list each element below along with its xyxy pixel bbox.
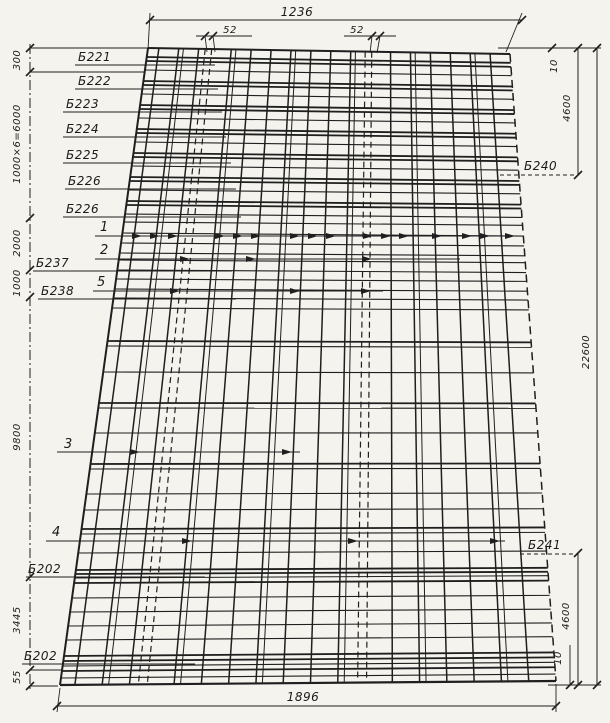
grid-line-v <box>174 49 231 684</box>
grid-line-h <box>64 652 554 656</box>
grid-line-h <box>145 70 512 76</box>
beam-label-b241: Б241 <box>528 538 561 552</box>
grid-line-h <box>135 142 517 147</box>
grid-line-h <box>124 222 523 225</box>
grid-line-h <box>112 308 529 310</box>
grid-line-h <box>116 279 527 281</box>
grid-line-h <box>126 205 521 209</box>
flow-arrow <box>180 256 190 262</box>
flow-arrow <box>462 233 472 239</box>
grid-line-h <box>133 157 518 161</box>
grid-line-h <box>133 153 517 157</box>
flow-arrow <box>130 449 140 455</box>
grid-line-v <box>338 51 351 682</box>
flow-arrow <box>308 233 318 239</box>
row-marker-5: 5 <box>97 275 106 290</box>
drawing-sheet: 1236 52 52 1896 300 1000×6=6000 2000 100… <box>0 0 610 723</box>
slab-edge-right-cut <box>510 54 556 681</box>
grid-joint-line <box>358 52 366 683</box>
grid-line-h <box>72 595 550 598</box>
dim-bottom-width: 1896 <box>287 690 320 704</box>
grid-line-v <box>475 53 508 681</box>
grid-line-h <box>127 201 521 205</box>
dim-ext <box>148 13 150 50</box>
grid-line-h <box>84 509 543 510</box>
grid-line-h <box>76 568 548 570</box>
flow-arrow <box>348 538 358 544</box>
beam-label-b223: Б223 <box>66 97 99 111</box>
grid-line-v <box>229 50 271 684</box>
dim-left-3445: 3445 <box>12 606 23 633</box>
grid-line-h <box>103 372 533 373</box>
dim-right-10-bottom: 10 <box>553 651 564 665</box>
beam-label-b221: Б221 <box>78 50 111 64</box>
grid-line-h <box>120 253 525 256</box>
grid-line-v <box>490 54 529 682</box>
dim-right-4600-top: 4600 <box>562 94 573 121</box>
flow-arrow <box>381 233 391 239</box>
slab-edge-bottom <box>60 681 556 685</box>
grid-line-h <box>63 657 554 661</box>
row-marker-1: 1 <box>100 220 109 235</box>
flow-arrow <box>282 449 292 455</box>
grid-line-v <box>201 50 251 684</box>
grid-line-v <box>283 51 311 684</box>
flow-arrow <box>363 233 373 239</box>
row-marker-3: 3 <box>64 437 73 452</box>
dim-right-10-top: 10 <box>549 59 560 73</box>
grid-joint-line <box>367 52 372 683</box>
grid-line-h <box>70 609 551 612</box>
grid-line-h <box>62 667 555 671</box>
grid-line-h <box>138 118 515 123</box>
grid-line-h <box>130 181 520 185</box>
grid-line-h <box>66 637 553 640</box>
dim-left-2000: 2000 <box>12 229 23 256</box>
grid-line-h <box>81 532 545 534</box>
reinforcement-plan-drawing: 1236 52 52 1896 300 1000×6=6000 2000 100… <box>0 0 610 723</box>
grid-line-h <box>130 177 519 181</box>
grid-line-v <box>391 52 393 682</box>
dim-left-300: 300 <box>12 50 23 71</box>
grid-line-h <box>121 243 524 246</box>
slab-edge-left <box>60 48 148 685</box>
flow-arrow <box>290 288 300 294</box>
beam-label-b226a: Б226 <box>68 174 101 188</box>
grid-line-h <box>107 346 532 347</box>
dimension-lines <box>22 13 601 712</box>
grid-line-h <box>91 463 541 464</box>
grid-line-v <box>310 51 330 683</box>
flow-arrow <box>505 233 515 239</box>
grid-line-h <box>78 551 546 553</box>
grid-line-h <box>142 94 514 99</box>
dim-gap-left: 52 <box>223 25 237 36</box>
beam-label-b202b: Б202 <box>24 649 57 663</box>
grid-line-h <box>75 572 548 574</box>
beam-label-b222: Б222 <box>78 74 111 88</box>
grid-line-v <box>470 53 501 681</box>
slab-edge-top <box>148 48 510 54</box>
grid-line-v <box>410 52 419 682</box>
grid-line-h <box>132 166 519 170</box>
beam-label-b237: Б237 <box>36 256 69 270</box>
beam-label-b240: Б240 <box>524 159 557 173</box>
dim-ext <box>506 13 522 52</box>
dim-right-4600-bottom: 4600 <box>561 602 572 629</box>
grid-line-h <box>119 260 526 263</box>
grid-line-h <box>82 527 545 529</box>
flow-arrow <box>399 233 409 239</box>
row-marker-2: 2 <box>100 243 109 258</box>
row-marker-4: 4 <box>52 525 61 540</box>
beam-label-b225: Б225 <box>66 148 99 162</box>
grid-line-h <box>108 341 532 342</box>
grid-line-h <box>61 674 556 678</box>
beam-label-b202a: Б202 <box>28 562 61 576</box>
dim-top-width: 1236 <box>281 5 314 19</box>
grid-line-h <box>68 623 552 626</box>
beam-label-b238: Б238 <box>41 284 74 298</box>
dim-left-9800: 9800 <box>12 423 23 450</box>
grid-line-v <box>430 53 447 682</box>
grid-line-v <box>450 53 474 682</box>
dim-left-55: 55 <box>12 670 23 684</box>
dim-left-1000: 1000 <box>12 269 23 296</box>
grid-line-h <box>128 190 520 194</box>
beam-label-b226b: Б226 <box>66 202 99 216</box>
grid-line-h <box>90 468 541 469</box>
dim-right-22600: 22600 <box>581 335 592 369</box>
dim-ext <box>57 688 60 712</box>
flow-arrow <box>432 233 442 239</box>
grid-line-h <box>74 581 549 583</box>
grid-line-v <box>344 51 355 682</box>
grid-line-h <box>86 493 542 494</box>
flow-arrow <box>326 233 336 239</box>
grid-line-v <box>415 52 426 682</box>
flow-arrow <box>150 233 160 239</box>
dim-left-6000: 1000×6=6000 <box>12 104 23 184</box>
dim-gap-right: 52 <box>350 25 364 36</box>
grid-line-v <box>262 50 295 683</box>
flow-arrow <box>132 233 142 239</box>
grid-line-v <box>256 50 291 683</box>
beam-label-b224: Б224 <box>66 122 99 136</box>
